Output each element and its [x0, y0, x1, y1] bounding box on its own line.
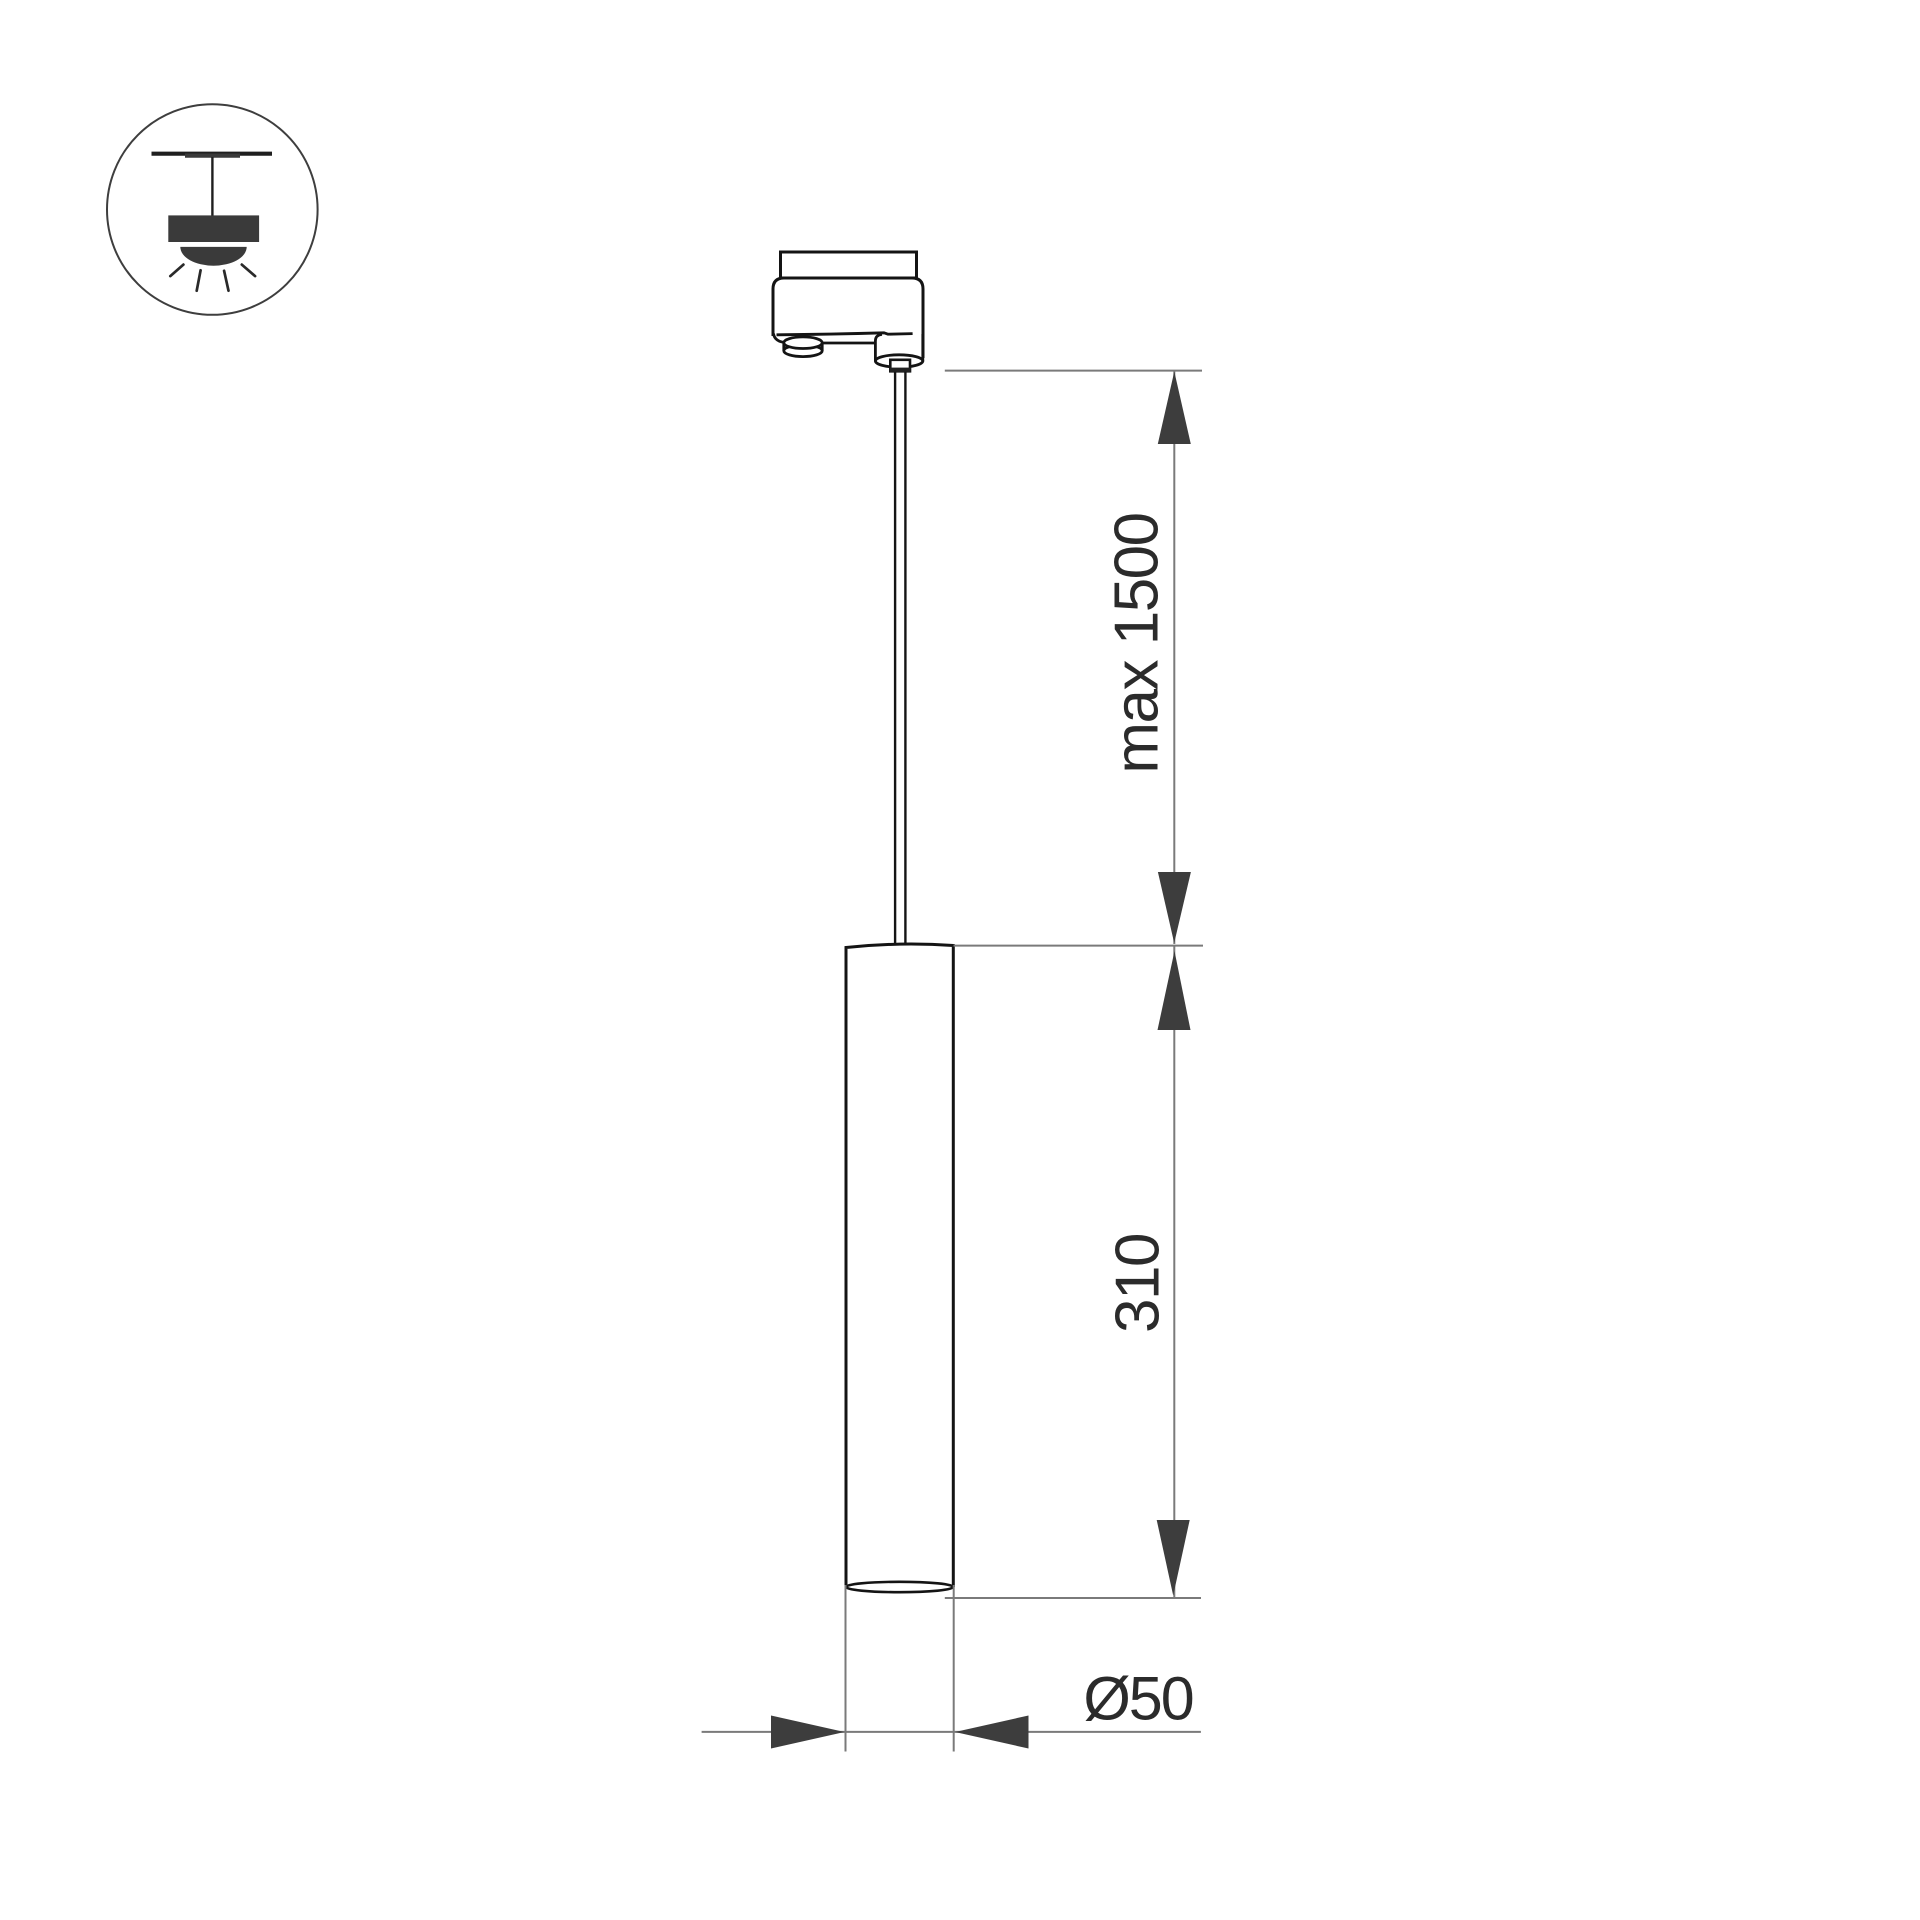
svg-text:Ø50: Ø50 [1083, 1665, 1192, 1733]
svg-text:310: 310 [1104, 1234, 1173, 1333]
svg-text:max 1500: max 1500 [1103, 513, 1172, 773]
